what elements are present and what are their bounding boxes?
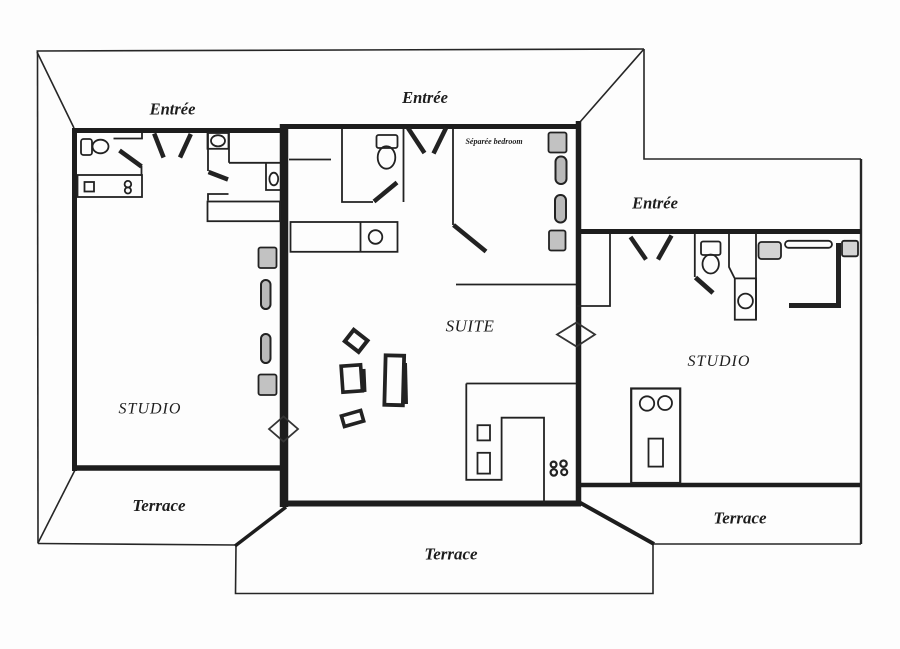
svg-text:Entrée: Entrée bbox=[631, 194, 678, 213]
svg-text:SUITE: SUITE bbox=[446, 317, 495, 336]
svg-text:Terrace: Terrace bbox=[713, 509, 767, 528]
svg-text:STUDIO: STUDIO bbox=[688, 353, 751, 370]
svg-text:Séparée bedroom: Séparée bedroom bbox=[465, 137, 522, 146]
svg-text:Entrée: Entrée bbox=[401, 88, 448, 107]
svg-text:Terrace: Terrace bbox=[132, 496, 186, 515]
svg-text:Terrace: Terrace bbox=[424, 545, 478, 564]
svg-text:STUDIO: STUDIO bbox=[119, 401, 182, 418]
svg-text:Entrée: Entrée bbox=[149, 100, 196, 119]
